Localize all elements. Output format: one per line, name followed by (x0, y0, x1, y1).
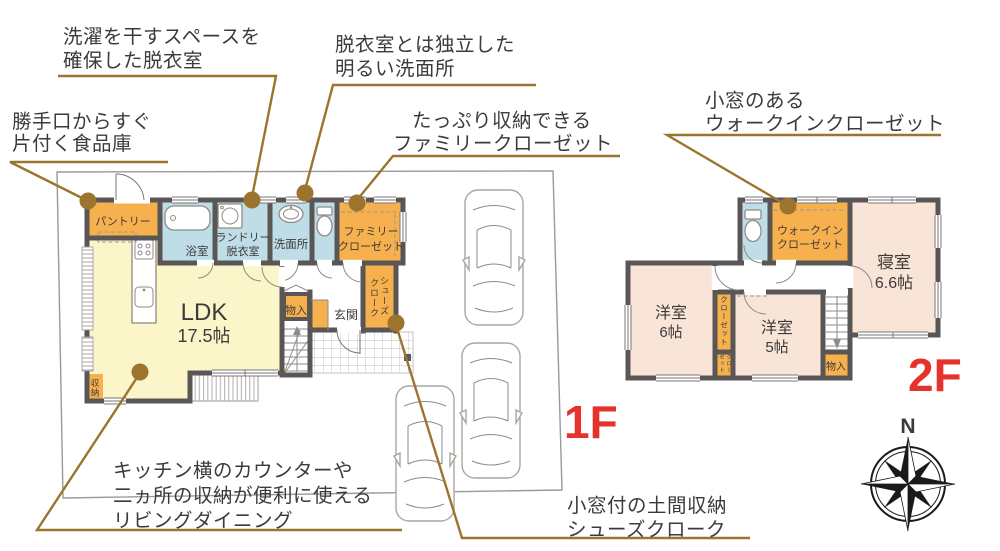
label-bedroom-size: 6.6帖 (875, 274, 913, 292)
label-shoes-cloak-1: シューズ (379, 276, 389, 316)
compass-north-label: N (900, 415, 915, 438)
label-pantry: パントリー (95, 215, 151, 228)
stairs-icon-2f (826, 296, 848, 349)
label-shoes-cloak-2: クローク (369, 278, 379, 318)
toilet-icon-2f (745, 210, 761, 242)
leader-wic (667, 135, 941, 206)
annotation-washroom-line1: 脱衣室とは独立した (335, 34, 515, 56)
label-ldk: LDK (181, 299, 228, 326)
label-family-closet-1: ファミリー (344, 226, 399, 238)
label-closet-small-1: クロー (725, 354, 732, 374)
label-laundry-2: 脱衣室 (227, 244, 260, 258)
car-icon (394, 386, 456, 521)
toilet-icon-1f (317, 207, 332, 236)
annotation-living-line3: リビングダイニング (113, 510, 293, 532)
label-washroom: 洗面所 (274, 238, 309, 251)
leader-dot (244, 192, 261, 209)
leader-dot (349, 195, 366, 212)
label-wic-1: ウォークイン (777, 224, 843, 237)
label-laundry-1: ランドリー (216, 232, 271, 244)
annotation-shoes-cloak-line2: シューズクローク (567, 519, 726, 541)
leader-dot (80, 193, 97, 210)
leader-dot (132, 364, 149, 381)
label-western6: 洋室 (655, 304, 687, 322)
label-monoire-1f: 物入 (285, 303, 307, 317)
wood-deck (190, 375, 258, 401)
floor-plan-page: パントリー 浴室 ランドリー 脱衣室 洗面所 ファミリー クローゼット LDK … (0, 0, 1000, 551)
label-monoire-2f: 物入 (826, 360, 846, 373)
washbasin-icon (279, 206, 303, 223)
annotation-wic-line2: ウォークインクローゼット (705, 113, 945, 135)
annotation-washroom-line2: 明るい洗面所 (335, 58, 455, 80)
annotation-pantry-line1: 勝手口からすぐ (12, 111, 152, 133)
leader-dot (780, 198, 797, 215)
label-closet-2f: クローゼット (719, 295, 728, 346)
label-bath: 浴室 (186, 244, 209, 258)
label-family-closet-2: クローゼット (338, 240, 404, 253)
label-bedroom: 寝室 (877, 252, 911, 272)
annotation-family-closet-line1: たっぷり収納できる (412, 110, 592, 132)
floor-label-1f: 1F (564, 396, 618, 448)
bathtub-icon (165, 206, 210, 230)
room-genkan-step (311, 300, 328, 330)
annotation-wic-line1: 小窓のある (705, 90, 805, 112)
label-closet-small-2: ゼット (718, 353, 725, 374)
annotation-shoes-cloak-line1: 小窓付の土間収納 (567, 495, 727, 517)
annotation-pantry-line2: 片付く食品庫 (12, 133, 132, 155)
label-genkan: 玄関 (334, 307, 358, 322)
label-western6-size: 6帖 (659, 324, 682, 341)
annotation-living-line2: 二ヵ所の収納が便利に使える (113, 485, 372, 507)
louver-window (82, 247, 93, 371)
leader-dot (388, 315, 405, 332)
kitchen-counter (132, 237, 156, 323)
floor-plan-drawing: パントリー 浴室 ランドリー 脱衣室 洗面所 ファミリー クローゼット LDK … (0, 0, 1000, 551)
entrance-approach-tiles (311, 332, 413, 373)
label-western5-size: 5帖 (765, 339, 788, 356)
car-icon (460, 343, 522, 478)
label-storage-1f: 収納 (90, 378, 100, 398)
leader-dot (297, 185, 314, 202)
label-western5: 洋室 (761, 319, 793, 337)
floor-label-2f: 2F (908, 349, 962, 401)
label-wic-2: クローゼット (777, 238, 843, 251)
washing-machine-icon (218, 204, 242, 228)
annotation-laundry-space-line2: 確保した脱衣室 (63, 50, 203, 72)
annotation-living-line1: キッチン横のカウンターや (113, 460, 353, 482)
annotation-laundry-space-line1: 洗濯を干すスペースを (63, 26, 261, 48)
label-ldk-size: 17.5帖 (177, 326, 230, 346)
annotation-family-closet-line2: ファミリークローゼット (393, 133, 613, 155)
floor-plan-2f: ウォークイン クローゼット 寝室 6.6帖 洋室 6帖 洋室 5帖 クローゼット… (625, 197, 941, 381)
compass-rose-icon: N (861, 415, 955, 531)
car-icon (463, 190, 525, 325)
